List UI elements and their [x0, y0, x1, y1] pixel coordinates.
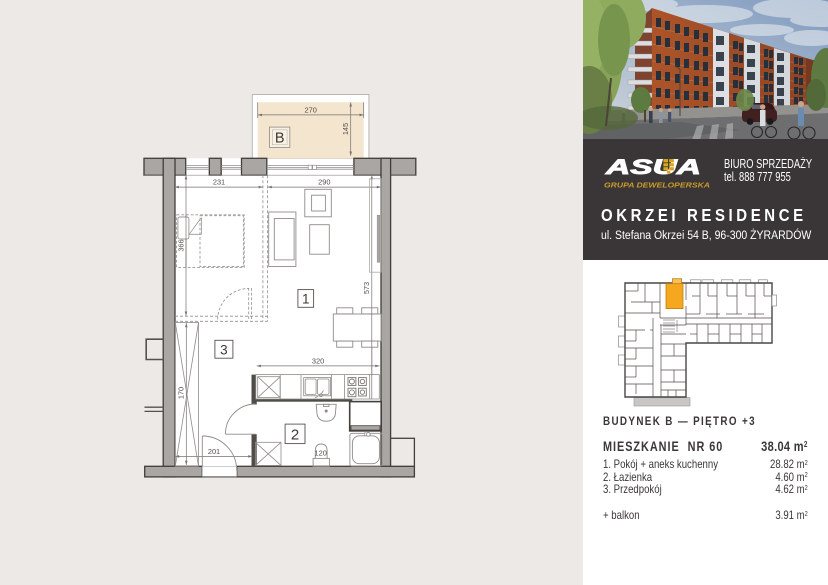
svg-text:573: 573 — [362, 282, 371, 294]
svg-text:170: 170 — [177, 387, 186, 399]
svg-text:1: 1 — [302, 292, 310, 307]
svg-text:231: 231 — [213, 178, 225, 187]
svg-text:290: 290 — [318, 178, 330, 187]
svg-text:320: 320 — [312, 356, 324, 365]
svg-text:B: B — [275, 131, 285, 147]
svg-text:120: 120 — [315, 448, 327, 457]
svg-text:201: 201 — [208, 447, 220, 456]
svg-text:3: 3 — [220, 343, 228, 358]
svg-text:ASUA: ASUA — [604, 156, 701, 179]
svg-text:2: 2 — [291, 427, 299, 444]
svg-text:145: 145 — [341, 123, 350, 135]
svg-text:366: 366 — [176, 239, 185, 251]
svg-text:GRUPA DEWELOPERSKA: GRUPA DEWELOPERSKA — [604, 181, 710, 190]
svg-text:270: 270 — [305, 105, 317, 114]
